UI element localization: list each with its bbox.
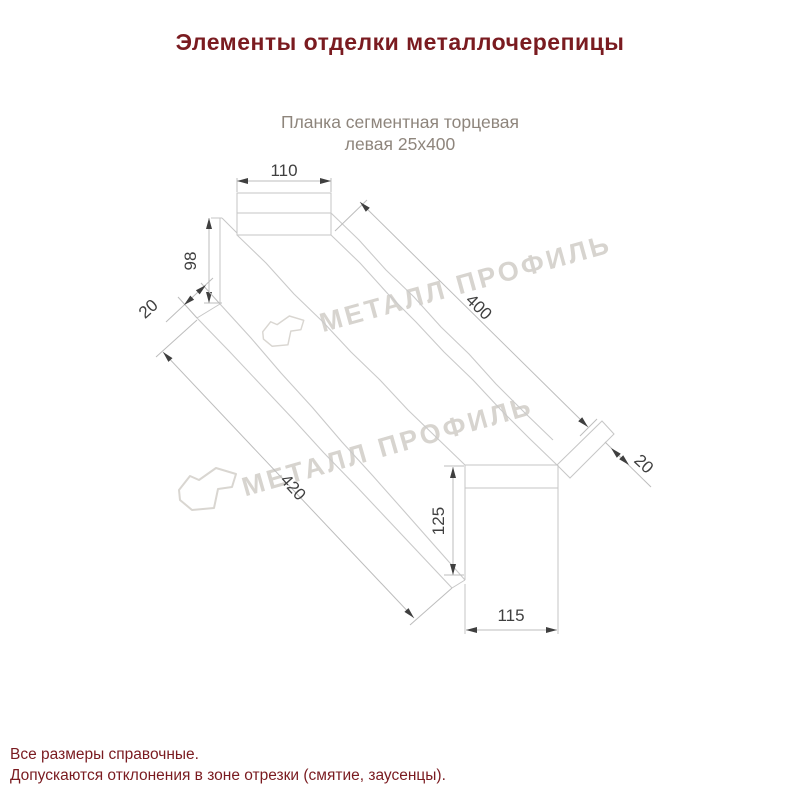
dimension-20-right: 20 xyxy=(605,442,657,487)
technical-drawing: МЕТАЛЛ ПРОФИЛЬ МЕТАЛЛ ПРОФИЛЬ xyxy=(0,0,800,800)
footer-note-line1: Все размеры справочные. xyxy=(10,744,446,765)
near-end-profile xyxy=(197,193,331,318)
dim-label-20-left: 20 xyxy=(135,296,162,323)
dim-label-115: 115 xyxy=(497,606,524,625)
footer-notes: Все размеры справочные. Допускаются откл… xyxy=(10,744,446,786)
dim-label-20-right: 20 xyxy=(630,451,657,478)
dim-label-98: 98 xyxy=(181,252,200,271)
footer-note-line2: Допускаются отклонения в зоне отрезки (с… xyxy=(10,765,446,786)
dim-label-110: 110 xyxy=(270,161,297,180)
dim-label-125: 125 xyxy=(429,507,448,535)
far-end-flange xyxy=(557,421,614,478)
brand-logo-watermark-lower xyxy=(179,468,236,510)
dimension-20-left: 20 xyxy=(135,278,220,322)
page: Элементы отделки металлочерепицы Планка … xyxy=(0,0,800,800)
dimension-115: 115 xyxy=(466,606,557,633)
dimension-110: 110 xyxy=(237,161,331,192)
brand-logo-watermark-upper xyxy=(263,316,304,346)
brand-watermark-text-upper: МЕТАЛЛ ПРОФИЛЬ xyxy=(316,229,614,338)
